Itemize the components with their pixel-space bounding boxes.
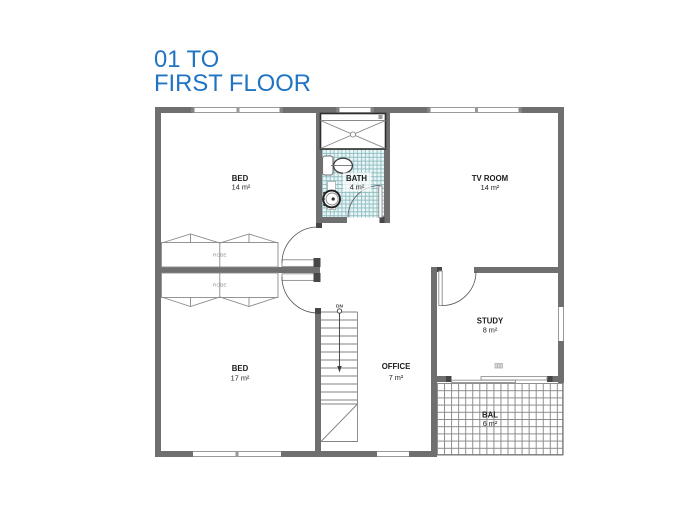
svg-text:4 m²: 4 m²: [350, 183, 365, 192]
svg-text:TV ROOM: TV ROOM: [472, 174, 508, 183]
svg-text:ROBE: ROBE: [213, 253, 227, 259]
svg-text:14 m²: 14 m²: [481, 183, 500, 192]
svg-text:6 m²: 6 m²: [483, 419, 498, 428]
svg-text:BED: BED: [232, 364, 249, 373]
svg-text:BAL: BAL: [482, 411, 498, 420]
svg-text:OFFICE: OFFICE: [382, 362, 411, 371]
svg-text:01 TO: 01 TO: [154, 46, 219, 73]
svg-text:DN: DN: [336, 304, 343, 310]
svg-text:14 m²: 14 m²: [232, 183, 251, 192]
svg-text:ROBE: ROBE: [213, 283, 227, 289]
svg-text:17 m²: 17 m²: [231, 373, 250, 382]
svg-text:STUDY: STUDY: [477, 317, 504, 326]
svg-text:7 m²: 7 m²: [389, 373, 404, 382]
svg-text:8 m²: 8 m²: [483, 326, 498, 335]
svg-text:FIRST FLOOR: FIRST FLOOR: [154, 70, 311, 97]
